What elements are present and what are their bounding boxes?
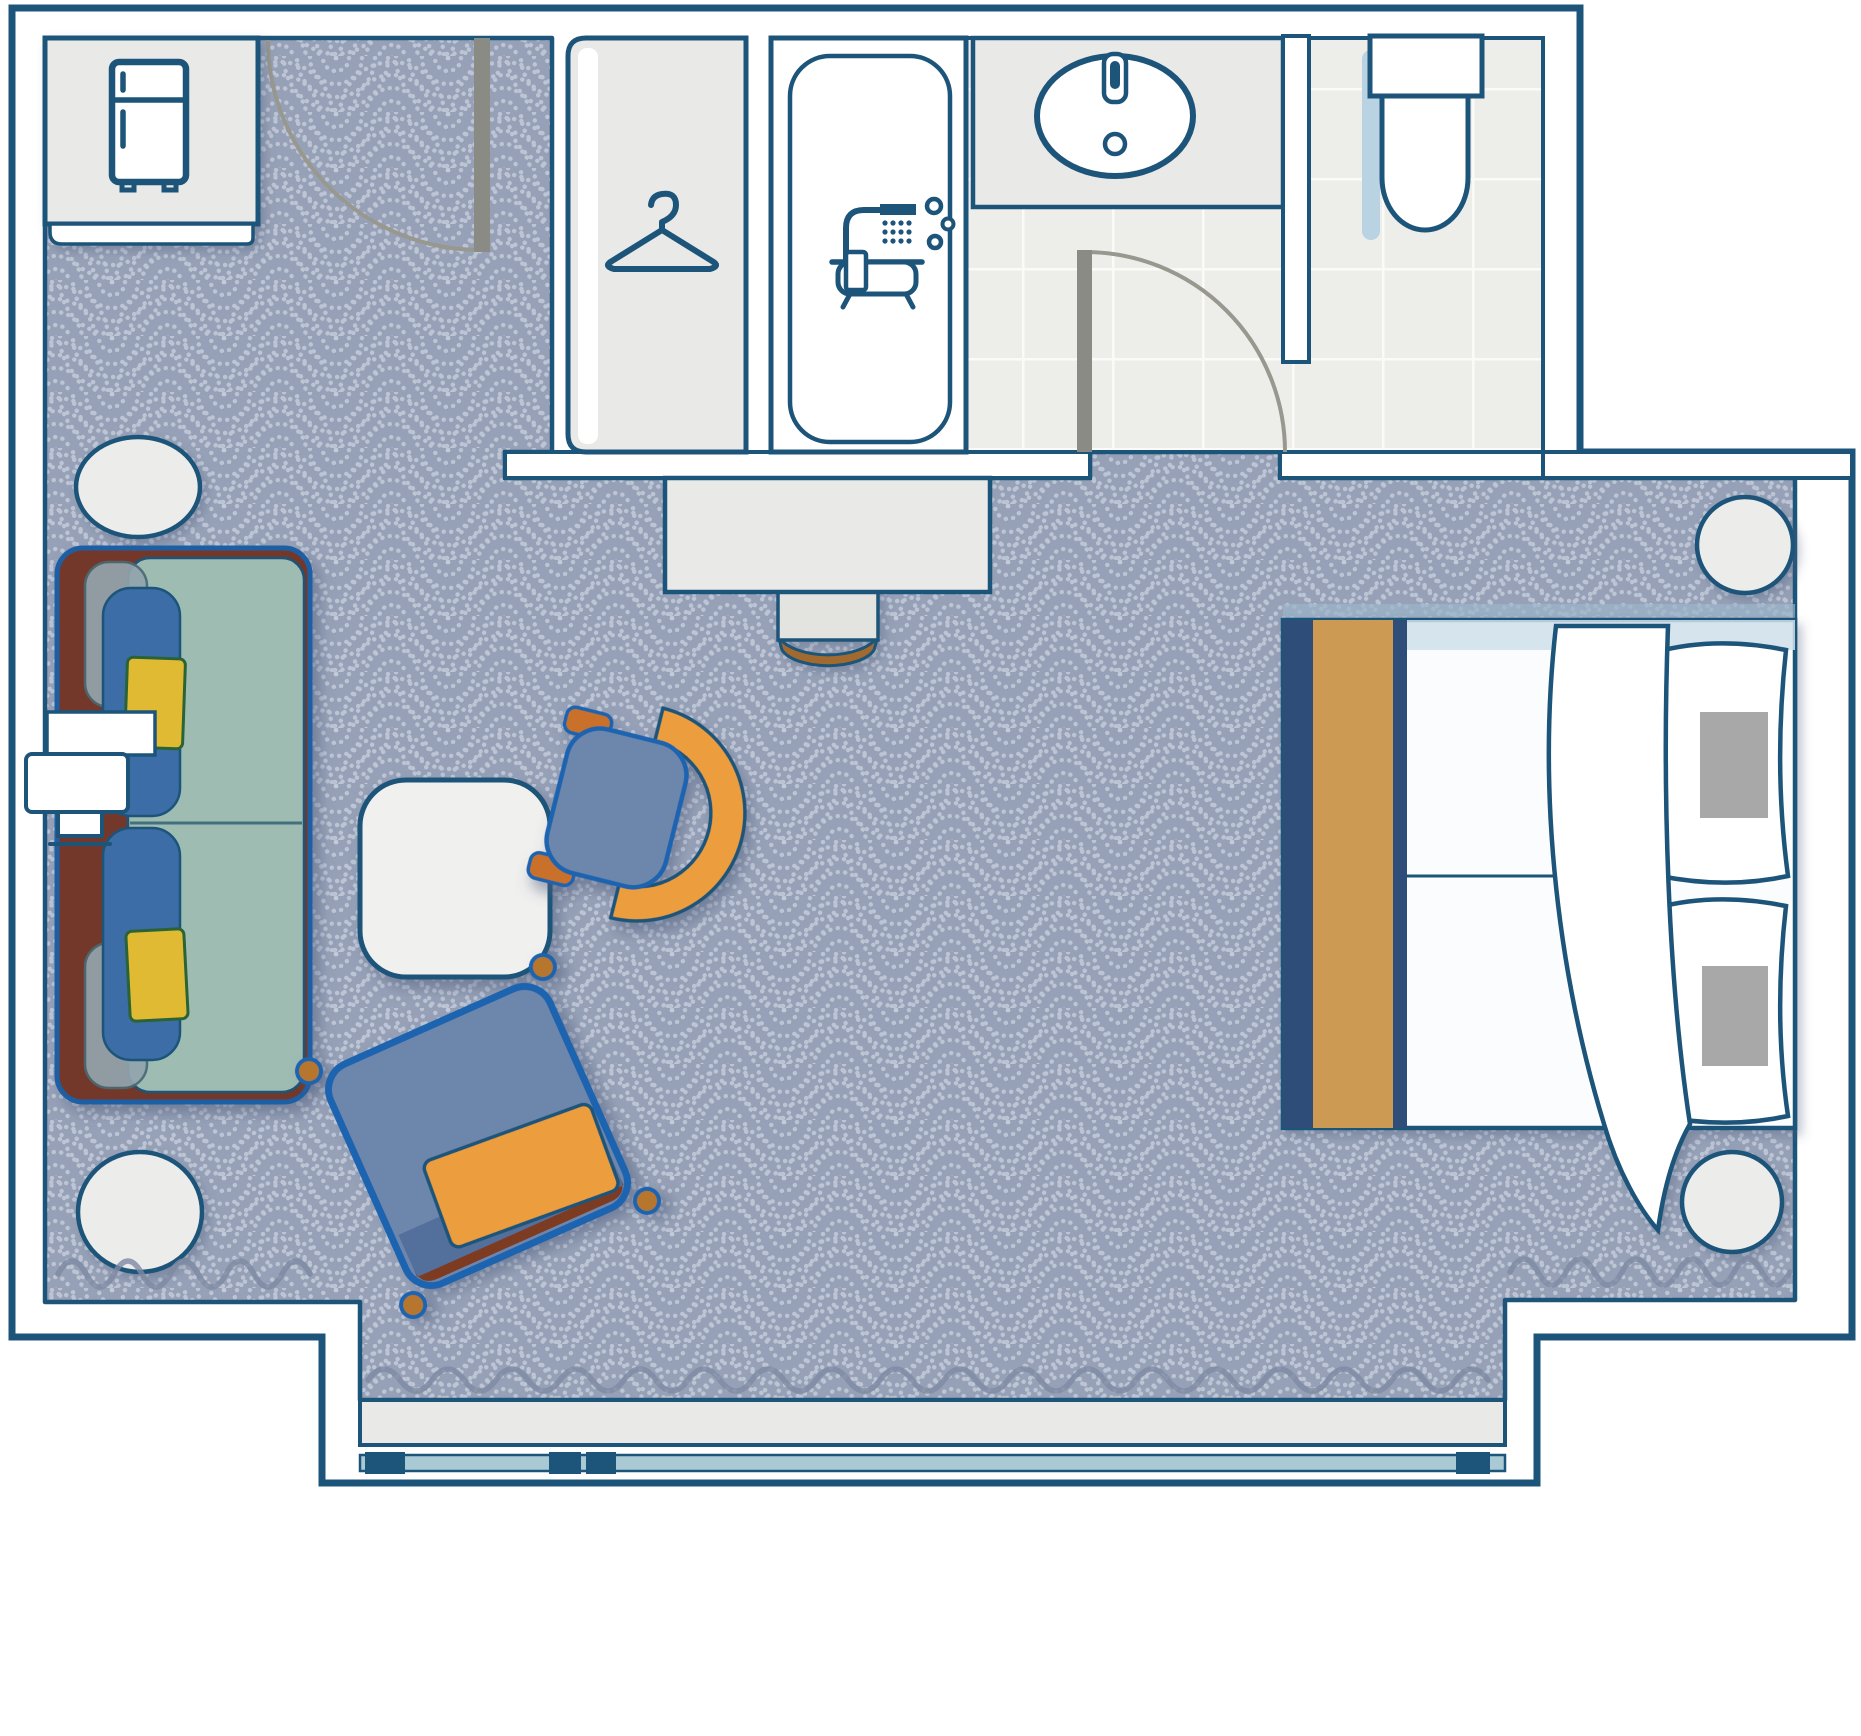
window-frame-segment bbox=[586, 1452, 616, 1474]
side-table-bottom-left bbox=[78, 1152, 202, 1272]
bed-pillow-bottom-core bbox=[1702, 966, 1768, 1066]
bathtub bbox=[771, 38, 966, 452]
coffee-table bbox=[360, 780, 550, 977]
window-frame-segment bbox=[1456, 1452, 1490, 1474]
floor-plan-canvas: Hotel guest room floor plan (top-down vi… bbox=[0, 0, 1861, 1736]
tv-screen bbox=[26, 754, 128, 812]
sink-vanity bbox=[973, 38, 1283, 207]
nightstand-bottom bbox=[1682, 1152, 1782, 1252]
window-track bbox=[360, 1452, 1505, 1474]
window-wall bbox=[360, 1400, 1505, 1474]
partition-wall bbox=[1283, 36, 1309, 362]
bed-runner bbox=[1313, 620, 1393, 1128]
refrigerator-icon bbox=[112, 62, 186, 190]
side-table-top-left bbox=[76, 437, 200, 537]
window-frame-segment bbox=[549, 1452, 581, 1474]
balcony-slab bbox=[360, 1400, 1505, 1445]
nightstand-top bbox=[1697, 497, 1793, 593]
window-frame-segment bbox=[365, 1452, 405, 1474]
bed-foot-frame bbox=[1283, 620, 1313, 1128]
tv-mount bbox=[58, 812, 102, 836]
sofa-yellow-pillow-bottom bbox=[126, 929, 189, 1022]
floor-plan: Hotel guest room floor plan (top-down vi… bbox=[0, 0, 1861, 1736]
closet bbox=[568, 38, 746, 452]
bed-runner-edge bbox=[1393, 620, 1407, 1128]
bed-pillow-top-core bbox=[1700, 712, 1768, 818]
desk-stool bbox=[778, 590, 878, 666]
entry-door-leaf bbox=[474, 38, 490, 252]
minibar-counter bbox=[45, 38, 258, 244]
bathroom-door-leaf bbox=[1077, 250, 1092, 452]
tv-shelf bbox=[47, 712, 155, 755]
